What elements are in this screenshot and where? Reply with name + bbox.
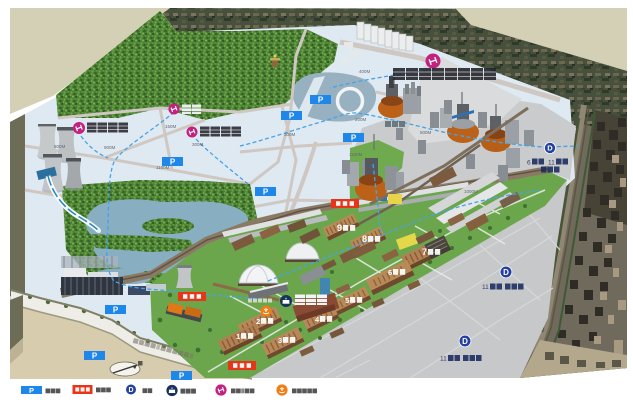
svg-text:2: 2 [256, 317, 260, 326]
svg-text:900M: 900M [104, 145, 116, 150]
svg-text:D: D [128, 387, 133, 394]
svg-text:11: 11 [440, 356, 447, 363]
svg-text:P: P [29, 386, 34, 395]
svg-text:7: 7 [422, 247, 427, 257]
svg-text:8: 8 [362, 234, 367, 244]
svg-text:500M: 500M [420, 130, 432, 135]
svg-text:D: D [462, 337, 468, 346]
svg-text:P: P [92, 352, 98, 361]
svg-text:11: 11 [482, 284, 489, 291]
svg-text:9: 9 [337, 223, 342, 233]
svg-text:D: D [547, 144, 553, 153]
svg-text:3: 3 [278, 336, 282, 345]
svg-text:6: 6 [527, 160, 531, 167]
svg-text:6: 6 [388, 268, 392, 277]
svg-text:P: P [289, 112, 295, 121]
svg-text:150M: 150M [165, 124, 177, 129]
svg-text:11: 11 [548, 160, 555, 167]
svg-text:800M: 800M [54, 144, 66, 149]
svg-text:1000M: 1000M [464, 189, 478, 194]
svg-text:5: 5 [345, 296, 349, 305]
svg-text:1: 1 [236, 332, 240, 341]
svg-text:P: P [179, 372, 185, 381]
svg-text:D: D [503, 268, 509, 277]
svg-text:1100M: 1100M [349, 152, 363, 157]
svg-text:400M: 400M [359, 69, 371, 74]
svg-text:P: P [170, 158, 176, 167]
svg-text:P: P [263, 188, 269, 197]
svg-text:P: P [318, 96, 324, 105]
svg-text:200M: 200M [355, 117, 367, 122]
svg-text:300M: 300M [192, 142, 204, 147]
svg-text:P: P [351, 134, 357, 143]
svg-text:300M: 300M [284, 132, 296, 137]
svg-text:P: P [113, 306, 119, 315]
